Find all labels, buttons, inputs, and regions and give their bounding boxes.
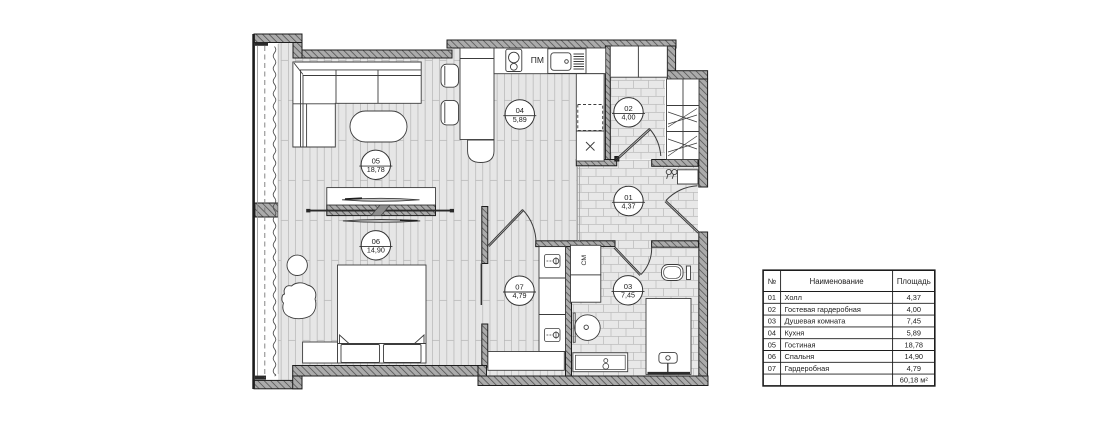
svg-text:01: 01 bbox=[768, 293, 776, 302]
svg-text:4,37: 4,37 bbox=[907, 293, 921, 302]
svg-text:Кухня: Кухня bbox=[785, 329, 805, 338]
svg-text:60,18 м²: 60,18 м² bbox=[900, 376, 929, 385]
svg-text:Душевая комната: Душевая комната bbox=[785, 317, 847, 326]
svg-text:03: 03 bbox=[768, 317, 776, 326]
svg-text:18,78: 18,78 bbox=[905, 340, 924, 349]
svg-text:5,89: 5,89 bbox=[907, 329, 921, 338]
svg-text:№: № bbox=[768, 277, 776, 286]
svg-text:4,00: 4,00 bbox=[622, 113, 636, 122]
svg-text:14,90: 14,90 bbox=[905, 352, 924, 361]
svg-text:Гардеробная: Гардеробная bbox=[785, 364, 830, 373]
svg-text:07: 07 bbox=[768, 364, 776, 373]
svg-text:4,79: 4,79 bbox=[907, 364, 921, 373]
svg-text:05: 05 bbox=[768, 340, 776, 349]
svg-text:18,78: 18,78 bbox=[367, 165, 385, 174]
svg-text:4,37: 4,37 bbox=[622, 201, 636, 210]
svg-text:СМ: СМ bbox=[581, 255, 588, 266]
svg-text:Гостиная: Гостиная bbox=[785, 340, 816, 349]
svg-text:Наименование: Наименование bbox=[810, 277, 864, 286]
svg-text:02: 02 bbox=[768, 305, 776, 314]
svg-text:5,89: 5,89 bbox=[513, 115, 527, 124]
svg-text:Площадь: Площадь bbox=[897, 277, 931, 286]
svg-text:4,79: 4,79 bbox=[513, 291, 527, 300]
svg-text:04: 04 bbox=[768, 329, 776, 338]
svg-text:4,00: 4,00 bbox=[907, 305, 921, 314]
svg-text:7,45: 7,45 bbox=[907, 317, 921, 326]
svg-text:14,90: 14,90 bbox=[367, 246, 385, 255]
svg-text:Спальня: Спальня bbox=[785, 352, 815, 361]
svg-text:ПМ: ПМ bbox=[531, 55, 544, 65]
svg-text:7,45: 7,45 bbox=[621, 291, 635, 300]
svg-text:06: 06 bbox=[768, 352, 776, 361]
svg-text:Холл: Холл bbox=[785, 293, 802, 302]
svg-text:Гостевая гардеробная: Гостевая гардеробная bbox=[785, 305, 861, 314]
